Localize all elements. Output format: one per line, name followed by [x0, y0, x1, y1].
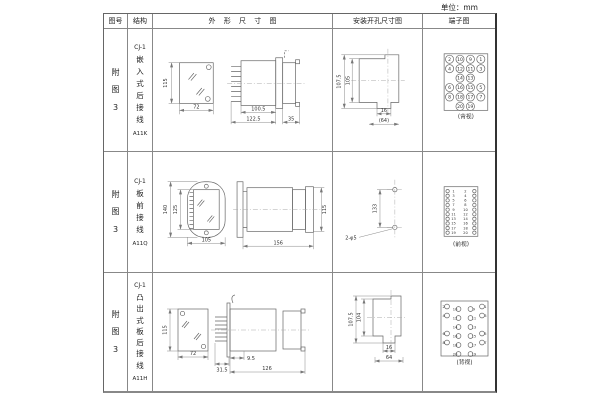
header-install-holes: 安装开孔尺寸图: [333, 14, 423, 29]
terminal-pin-number: 14: [463, 217, 468, 221]
cell-install-row2: 133 2-φ5: [333, 152, 423, 273]
figure-number: 附图3: [112, 306, 120, 359]
terminal-pin: [446, 222, 449, 225]
dim-body-length: 100.5: [251, 107, 265, 113]
cell-structure-row2: CJ-1 板前接线 A11Q: [128, 152, 153, 273]
terminal-pin-number: 14: [457, 76, 463, 82]
structure-type: 嵌入式后接线: [136, 54, 144, 126]
terminal-view-label: (背视): [456, 358, 472, 366]
structure-type: 凸出式板后接线: [136, 292, 144, 371]
structure-code: A11K: [133, 131, 147, 137]
side-view: 100.5 122.5 35: [227, 51, 304, 124]
terminal-pin: [473, 203, 476, 206]
terminal-pin-number: 17: [451, 226, 456, 230]
terminal-pin-number: 18: [463, 226, 468, 230]
cell-install-row3: 107.5 104 16 64: [333, 273, 423, 391]
unit-label: 单位：mm: [103, 2, 494, 13]
front-view: 115 72: [162, 309, 208, 360]
dim-outer-height: 140: [163, 205, 169, 214]
dim-total-length: 122.5: [246, 116, 260, 122]
dim-outer-height: 107.5: [336, 74, 342, 88]
cell-structure-row3: CJ-1 凸出式板后接线 A11H: [128, 273, 153, 391]
cell-figure-row1: 附图3: [104, 29, 128, 152]
header-terminal: 端子图: [423, 14, 495, 29]
terminal-diagram-a11h: 2109141211314136161558181772019(背视): [423, 273, 495, 391]
terminal-pin-number: 8: [448, 95, 451, 101]
terminal-pin-number: 2: [464, 189, 466, 193]
dim-width: 72: [189, 351, 195, 357]
terminal-pin-number: 10: [463, 208, 468, 212]
header-structure: 结构: [128, 14, 153, 29]
terminal-pin-number: 6: [448, 85, 451, 91]
terminal-diagram-a11q: 1234567891011121314151617181920(前视): [423, 152, 495, 272]
terminal-pin: [446, 194, 449, 197]
structure-type: 板前接线: [136, 188, 144, 236]
terminal-pin-number: 1: [479, 57, 482, 63]
terminal-pin-number: 11: [468, 66, 474, 72]
terminal-pin-number: 4: [448, 66, 451, 72]
terminal-pin-number: 19: [468, 104, 474, 110]
terminal-pin-number: 13: [468, 76, 474, 82]
structure-model: CJ-1: [134, 178, 146, 185]
terminal-pin-number: 5: [452, 199, 454, 203]
dim-height: 115: [163, 78, 169, 87]
cell-terminal-row1: 2109141211314136161558181772019(背视): [423, 29, 495, 152]
install-drawing-a11k: 107.5 105 16 (64): [333, 29, 423, 151]
outline-drawing-a11q: 140 125 105 156 115: [153, 152, 333, 272]
terminal-pin: [446, 231, 449, 234]
terminal-pin-number: 11: [472, 316, 477, 320]
terminal-pin-number: 17: [468, 95, 474, 101]
terminal-pin-number: 12: [453, 316, 458, 320]
cell-terminal-row3: 2109141211314136161558181772019(背视): [423, 273, 495, 391]
dim-width: 72: [193, 105, 199, 111]
terminal-pin-number: 6: [464, 199, 467, 203]
terminal-pin-number: 18: [453, 343, 458, 347]
terminal-pin: [473, 199, 476, 202]
terminal-pin-number: 18: [457, 95, 463, 101]
terminal-pin-number: 3: [452, 194, 454, 198]
terminal-pin-number: 12: [463, 212, 468, 216]
terminal-pin: [445, 340, 450, 345]
terminal-pin-number: 20: [457, 104, 463, 110]
terminal-pin: [473, 217, 476, 220]
terminal-view-label: (前视): [453, 240, 469, 248]
install-drawing-a11h: 107.5 104 16 64: [333, 273, 423, 391]
terminal-pin-number: 12: [457, 66, 463, 72]
side-view: 9.5 31.5 126: [211, 295, 311, 374]
figure-number: 附图3: [112, 186, 120, 239]
terminal-pin-number: 2: [448, 57, 451, 63]
terminal-pin: [446, 226, 449, 229]
terminal-pin: [446, 213, 449, 216]
dim-slot-width: 16: [385, 345, 391, 351]
dim-inner-height: 125: [173, 205, 179, 214]
cell-outline-row1: 115 72 100.5 122.5: [153, 29, 333, 152]
terminal-diagram-a11k: 2109141211314136161558181772019(背视): [423, 29, 495, 151]
terminal-pin: [445, 331, 450, 336]
terminal-pin: [446, 203, 449, 206]
terminal-pin: [446, 189, 449, 192]
terminal-pin-number: 7: [479, 95, 482, 101]
terminal-pin: [473, 208, 476, 211]
cell-outline-row3: 115 72 9.5 31.5: [153, 273, 333, 391]
dim-height: 115: [162, 325, 168, 335]
terminal-pin-number: 1: [484, 305, 486, 309]
dim-span: 64: [385, 355, 391, 361]
terminal-pin: [473, 226, 476, 229]
terminal-pin: [473, 222, 476, 225]
dim-side-height: 115: [321, 205, 327, 214]
dim-span: (64): [378, 118, 388, 124]
dim-width: 105: [201, 237, 210, 243]
cell-structure-row1: CJ-1 嵌入式后接线 A11K: [128, 29, 153, 152]
terminal-pin-number: 15: [468, 85, 474, 91]
structure-model: CJ-1: [134, 44, 146, 51]
structure-code: A11Q: [132, 241, 147, 247]
terminal-pin-number: 1: [452, 189, 454, 193]
dim-outer-height: 107.5: [348, 312, 354, 326]
install-drawing-a11q: 133 2-φ5: [333, 152, 423, 272]
terminal-pin-number: 19: [451, 231, 456, 235]
terminal-pin-number: 14: [453, 325, 458, 329]
terminal-pin-number: 17: [472, 343, 477, 347]
terminal-pin-number: 13: [472, 325, 477, 329]
terminal-pin-number: 10: [457, 57, 463, 63]
terminal-pin-number: 9: [473, 307, 476, 311]
terminal-pin: [446, 199, 449, 202]
terminal-pin-number: 5: [484, 332, 486, 336]
front-view: 140 125 105: [163, 182, 225, 246]
dim-offset: 9.5: [247, 356, 255, 362]
outline-drawing-a11k: 115 72 100.5 122.5: [153, 29, 333, 151]
terminal-pin-number: 20: [453, 352, 458, 356]
terminal-pin-number: 7: [484, 341, 486, 345]
cell-install-row1: 107.5 105 16 (64): [333, 29, 423, 152]
structure-code: A11H: [133, 376, 148, 382]
cell-outline-row2: 140 125 105 156 115: [153, 152, 333, 273]
terminal-pin-number: 3: [479, 66, 482, 72]
dim-length: 156: [273, 240, 282, 246]
terminal-pin-number: 7: [452, 203, 454, 207]
terminal-pin-number: 16: [457, 85, 463, 91]
terminal-pin: [446, 208, 449, 211]
terminal-pin-number: 10: [453, 307, 458, 311]
spec-table: 图号 结构 外 形 尺 寸 图 安装开孔尺寸图 端子图 附图3 CJ-1 嵌入式…: [103, 13, 497, 393]
terminal-pin-number: 9: [452, 208, 455, 212]
hole-callout: 2-φ5: [345, 235, 356, 241]
terminal-pin: [473, 194, 476, 197]
terminal-block: [441, 301, 488, 356]
terminal-pin-number: 13: [451, 217, 456, 221]
terminal-pin-number: 15: [451, 222, 456, 226]
terminal-pin: [445, 304, 450, 309]
structure-model: CJ-1: [134, 282, 146, 289]
side-view: 156 115: [233, 182, 328, 249]
dim-hole-spacing: 133: [372, 204, 378, 213]
terminal-pin-number: 2: [442, 305, 444, 309]
terminal-pin-number: 3: [484, 314, 486, 318]
terminal-pin-number: 20: [463, 231, 468, 235]
terminal-pin-number: 5: [479, 85, 482, 91]
terminal-pin: [445, 313, 450, 318]
terminal-pin-number: 15: [472, 334, 477, 338]
dim-slot-width: 16: [380, 108, 386, 114]
dim-length: 126: [262, 366, 272, 372]
terminal-pin: [473, 213, 476, 216]
terminal-pin-number: 4: [464, 194, 467, 198]
terminal-pin-number: 9: [469, 57, 472, 63]
cell-figure-row2: 附图3: [104, 152, 128, 273]
front-view: 115 72: [163, 63, 213, 115]
terminal-pin-number: 19: [472, 352, 477, 356]
terminal-pin: [473, 189, 476, 192]
terminal-pin-number: 16: [463, 222, 468, 226]
dim-inner-height: 104: [356, 313, 362, 323]
terminal-pin-number: 16: [453, 334, 458, 338]
header-figure-no: 图号: [104, 14, 128, 29]
dim-pin-length: 31.5: [216, 368, 227, 374]
dim-rear-length: 35: [287, 116, 293, 122]
cell-terminal-row2: 1234567891011121314151617181920(前视): [423, 152, 495, 273]
outline-drawing-a11h: 115 72 9.5 31.5: [153, 273, 333, 391]
document-page: 单位：mm 图号 结构 外 形 尺 寸 图 安装开孔尺寸图 端子图 附图3 CJ…: [0, 0, 600, 400]
terminal-pin: [473, 231, 476, 234]
terminal-pin: [446, 217, 449, 220]
terminal-pin-number: 8: [464, 203, 467, 207]
figure-number: 附图3: [112, 64, 120, 117]
terminal-pin-number: 11: [451, 212, 456, 216]
header-outline-dims: 外 形 尺 寸 图: [153, 14, 333, 29]
dim-inner-height: 105: [345, 76, 351, 85]
terminal-view-label: (背视): [458, 112, 474, 120]
cell-figure-row3: 附图3: [104, 273, 128, 391]
